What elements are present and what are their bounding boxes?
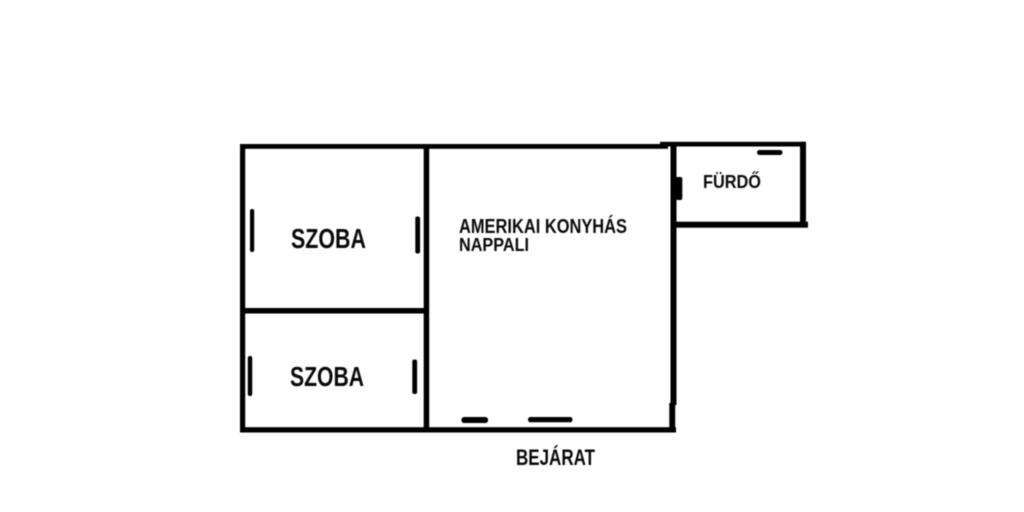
svg-text:BEJÁRAT: BEJÁRAT xyxy=(516,445,595,470)
svg-text:NAPPALI: NAPPALI xyxy=(459,234,529,255)
svg-text:SZOBA: SZOBA xyxy=(291,223,366,254)
svg-text:SZOBA: SZOBA xyxy=(290,361,364,392)
svg-text:FÜRDŐ: FÜRDŐ xyxy=(703,171,761,192)
